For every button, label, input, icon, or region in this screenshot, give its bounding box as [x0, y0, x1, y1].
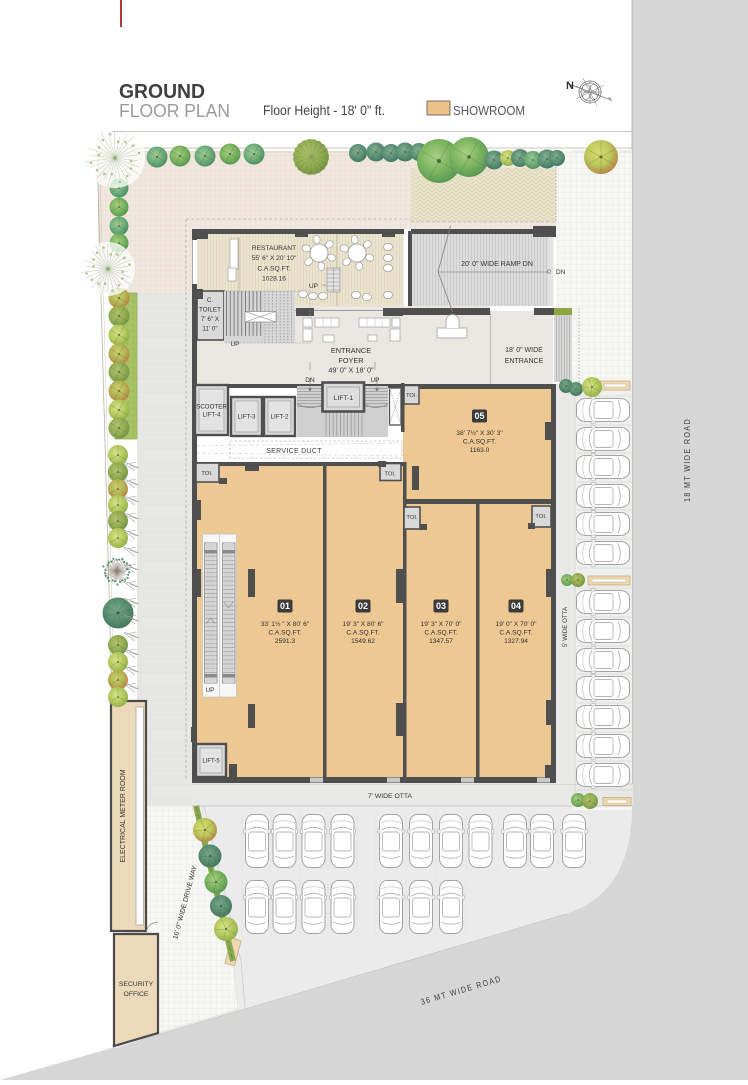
- svg-text:ENTRANCE: ENTRANCE: [331, 346, 371, 355]
- svg-text:SCOOTER: SCOOTER: [196, 403, 227, 410]
- svg-text:SECURITY: SECURITY: [119, 981, 154, 988]
- svg-text:03: 03: [436, 601, 446, 611]
- svg-text:SHOWROOM: SHOWROOM: [453, 103, 525, 118]
- svg-text:TOI.: TOI.: [201, 471, 213, 477]
- svg-text:FLOOR PLAN: FLOOR PLAN: [119, 100, 230, 121]
- svg-text:01: 01: [280, 601, 290, 611]
- svg-text:LIFT-3: LIFT-3: [238, 414, 256, 421]
- svg-text:TOI.: TOI.: [535, 514, 547, 520]
- svg-text:1327.94: 1327.94: [504, 638, 528, 645]
- svg-text:19' 3" X 80' 6": 19' 3" X 80' 6": [343, 621, 385, 628]
- svg-text:11' 0": 11' 0": [202, 326, 217, 333]
- svg-text:05: 05: [474, 411, 484, 421]
- svg-text:LIFT-5: LIFT-5: [202, 759, 220, 765]
- svg-text:LIFT-2: LIFT-2: [271, 414, 289, 421]
- svg-text:C.A.SQ.FT.: C.A.SQ.FT.: [257, 266, 291, 273]
- svg-text:ELECTRICAL METER ROOM: ELECTRICAL METER ROOM: [120, 769, 127, 862]
- svg-text:7' 6" X: 7' 6" X: [201, 316, 220, 323]
- svg-text:2591.3: 2591.3: [275, 638, 296, 645]
- svg-text:C.A.SQ.FT.: C.A.SQ.FT.: [463, 439, 497, 446]
- svg-text:FOYER: FOYER: [338, 356, 363, 365]
- svg-text:LIFT-4: LIFT-4: [203, 411, 221, 418]
- svg-text:C.: C.: [207, 297, 214, 304]
- svg-text:TOI.: TOI.: [384, 472, 396, 478]
- svg-text:5' WIDE OTTA: 5' WIDE OTTA: [562, 606, 569, 647]
- svg-text:TOI.: TOI.: [406, 515, 418, 521]
- svg-text:UP: UP: [205, 687, 214, 694]
- svg-text:UP: UP: [230, 341, 239, 348]
- svg-text:OFFICE: OFFICE: [124, 991, 149, 998]
- svg-text:C.A.SQ.FT.: C.A.SQ.FT.: [346, 630, 380, 637]
- svg-text:UP: UP: [309, 283, 318, 290]
- svg-text:33' 1½ " X 80' 6": 33' 1½ " X 80' 6": [261, 620, 310, 628]
- svg-text:20' 0" WIDE RAMP DN: 20' 0" WIDE RAMP DN: [461, 261, 533, 268]
- svg-text:UP: UP: [370, 377, 379, 384]
- svg-text:1028.16: 1028.16: [262, 276, 286, 283]
- svg-text:TOI.: TOI.: [406, 393, 417, 399]
- svg-text:18' 0" WIDE: 18' 0" WIDE: [505, 347, 543, 354]
- svg-text:55' 6" X 20' 10": 55' 6" X 20' 10": [252, 255, 297, 262]
- svg-text:RESTAURANT: RESTAURANT: [252, 245, 296, 252]
- svg-text:19' 0" X 70' 0": 19' 0" X 70' 0": [496, 621, 538, 628]
- svg-text:LIFT-1: LIFT-1: [334, 395, 354, 402]
- svg-text:DN: DN: [556, 269, 566, 276]
- svg-text:C.A.SQ.FT.: C.A.SQ.FT.: [499, 630, 533, 637]
- svg-text:7' WIDE OTTA: 7' WIDE OTTA: [368, 793, 413, 800]
- svg-text:38' 7½" X 30' 3": 38' 7½" X 30' 3": [456, 429, 503, 437]
- svg-text:SERVICE DUCT: SERVICE DUCT: [266, 448, 322, 455]
- svg-text:02: 02: [358, 601, 368, 611]
- svg-text:1347.57: 1347.57: [429, 638, 453, 645]
- svg-text:C.A.SQ.FT.: C.A.SQ.FT.: [268, 630, 302, 637]
- svg-text:N: N: [566, 80, 574, 92]
- svg-text:49' 0" X 18' 0": 49' 0" X 18' 0": [328, 366, 374, 375]
- svg-text:18 MT WIDE ROAD: 18 MT WIDE ROAD: [682, 418, 692, 502]
- svg-text:TOILET: TOILET: [199, 307, 221, 314]
- svg-text:1163.0: 1163.0: [470, 447, 490, 454]
- svg-text:Floor Height - 18' 0" ft.: Floor Height - 18' 0" ft.: [263, 102, 385, 118]
- svg-text:1549.62: 1549.62: [351, 638, 375, 645]
- svg-text:19' 3" X 70' 0": 19' 3" X 70' 0": [421, 621, 463, 628]
- svg-text:ENTRANCE: ENTRANCE: [505, 358, 544, 365]
- svg-text:C.A.SQ.FT.: C.A.SQ.FT.: [424, 630, 458, 637]
- svg-text:04: 04: [511, 601, 521, 611]
